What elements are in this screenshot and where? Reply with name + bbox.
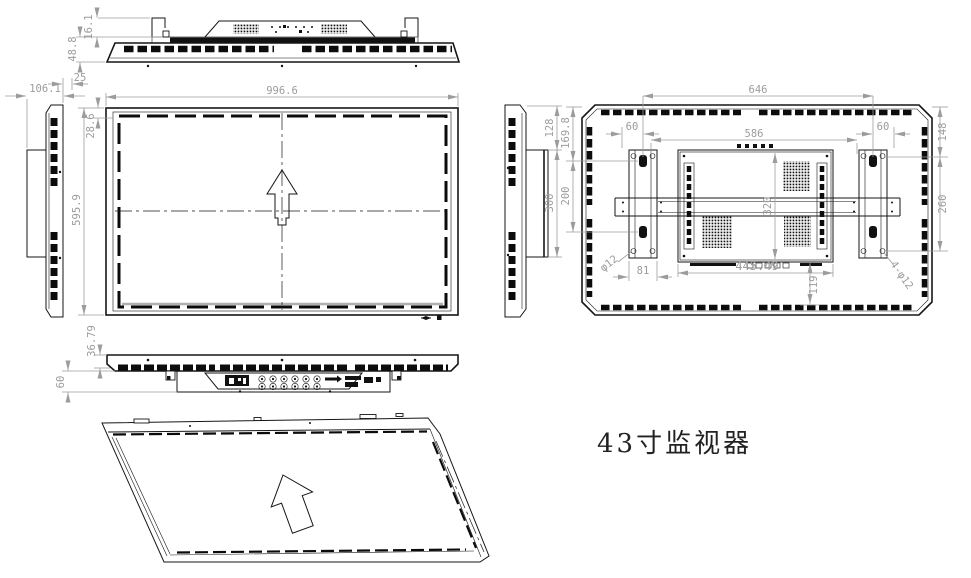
dim-rear-inner-span: 586 bbox=[745, 128, 764, 140]
dim-rear-box-width: 445.49 bbox=[735, 259, 778, 273]
orientation-arrow-iso bbox=[262, 467, 323, 537]
dim-rear-right-hole-offset: 60 bbox=[877, 121, 890, 133]
dim-rside-top-offset: 128 bbox=[544, 119, 556, 138]
dim-rear-right-top-offset: 148 bbox=[937, 123, 949, 142]
dim-side-gap: 25 bbox=[74, 72, 87, 84]
isometric-view-drawing bbox=[102, 414, 489, 563]
drawing-title: 43寸监视器 bbox=[597, 429, 752, 459]
right-side-view-drawing: 128 300 bbox=[505, 105, 562, 317]
bottom-view-drawing: 36.79 60 bbox=[55, 325, 458, 402]
dim-rear-right-hole-pitch: 260 bbox=[937, 195, 949, 214]
top-view-drawing: 16.1 48.8 bbox=[67, 8, 459, 72]
dim-bottom-lip: 36.79 bbox=[86, 325, 98, 357]
dim-rear-box-bottom-offset: 119 bbox=[808, 276, 820, 295]
dim-front-width: 996.6 bbox=[266, 85, 298, 97]
front-view-drawing: 996.6 28.6 595.9 bbox=[71, 85, 458, 320]
dim-front-height: 595.9 bbox=[71, 194, 83, 226]
dim-side-depth: 106.1 bbox=[29, 83, 61, 95]
dim-rear-left-hole-pitch: 200 bbox=[560, 187, 572, 206]
dim-top-hook-height: 16.1 bbox=[83, 14, 95, 39]
dim-rear-holes-dia: 4-φ12 bbox=[887, 259, 915, 292]
dim-bottom-recess: 60 bbox=[55, 376, 67, 389]
diagram-canvas: 16.1 48.8 25 106.1 bbox=[0, 0, 971, 578]
technical-drawing-page: 16.1 48.8 25 106.1 bbox=[0, 0, 971, 578]
dim-rear-box-height: 320 bbox=[762, 197, 774, 216]
power-led-icon bbox=[437, 316, 442, 321]
dim-top-total-height: 48.8 bbox=[67, 36, 79, 61]
rear-view-drawing: 646 60 60 586 169.8 200 148 260 320 bbox=[560, 84, 949, 315]
dim-rside-bracket-height: 300 bbox=[544, 194, 556, 213]
dim-front-bezel-top: 28.6 bbox=[85, 113, 97, 138]
dim-rear-bracket-width: 81 bbox=[637, 265, 650, 277]
dim-rear-left-top-offset: 169.8 bbox=[560, 117, 572, 149]
dim-rear-left-hole-offset: 60 bbox=[626, 121, 639, 133]
dim-rear-hole-dia: φ12 bbox=[598, 253, 620, 274]
dim-rear-bracket-span: 646 bbox=[749, 84, 768, 96]
